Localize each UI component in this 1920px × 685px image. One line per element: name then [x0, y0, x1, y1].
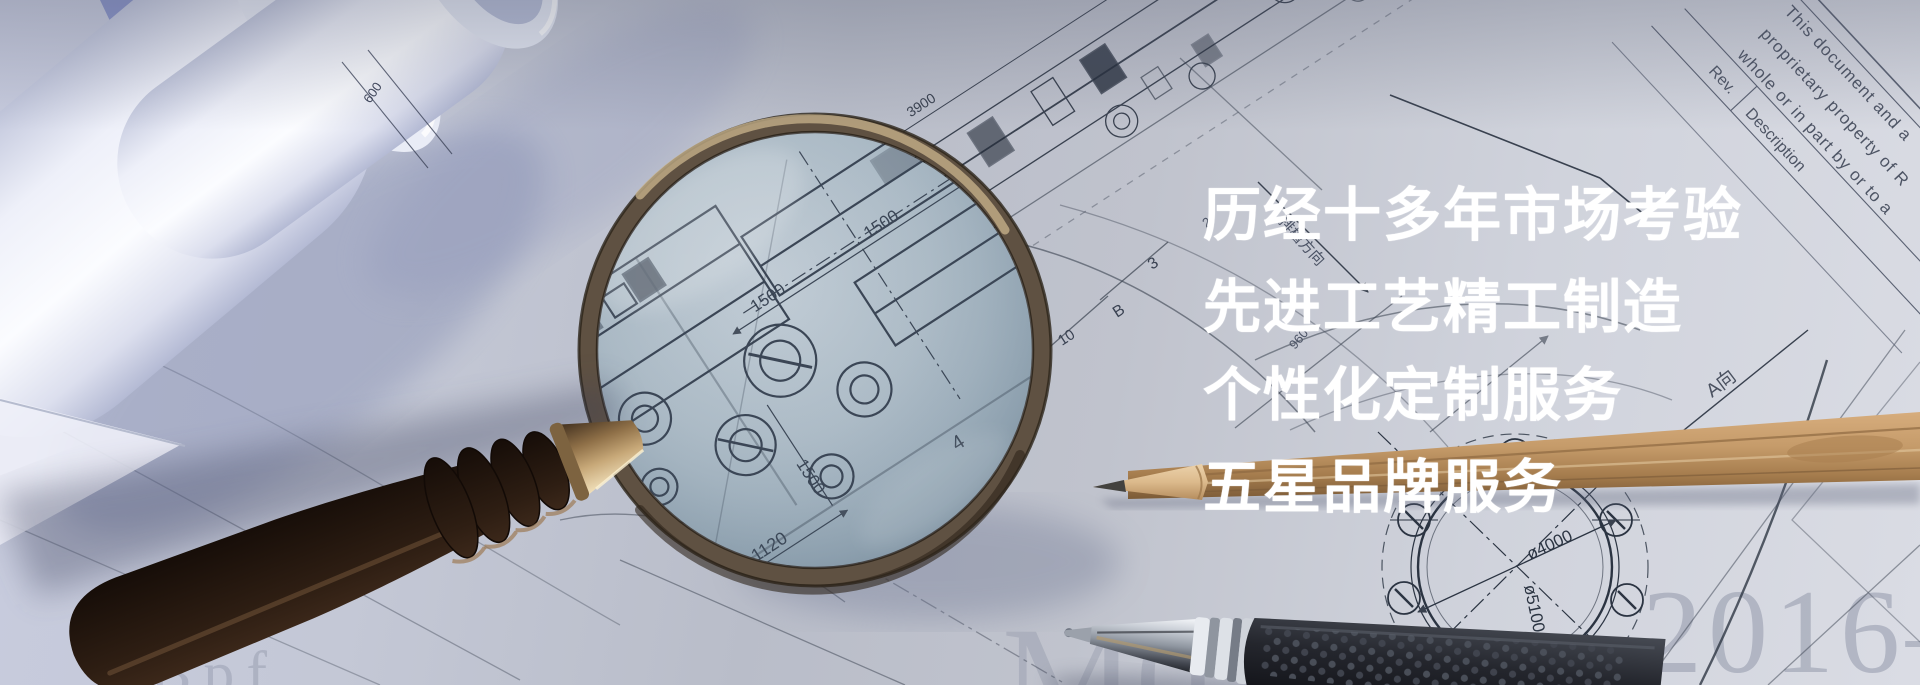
dim-label-3: 3 [1145, 254, 1162, 273]
dia-4000-label: ø4000 [1524, 526, 1576, 564]
top-vignette [0, 0, 1920, 130]
slogan-line-2: 先进工艺精工制造 [1203, 278, 1683, 338]
letter-b-drawing: B [1110, 301, 1128, 321]
slogan-line-1: 历经十多年市场考验 [1203, 186, 1743, 246]
slogan-line-4: 五星品牌服务 [1203, 458, 1563, 518]
pencil-graphite [1093, 480, 1126, 492]
dim-label-10: 10 [1055, 326, 1078, 349]
hero-banner: Bpf M0 2016— [0, 0, 1920, 685]
view-a-label: A向 [1702, 365, 1741, 402]
slogan-line-3: 个性化定制服务 [1203, 366, 1623, 426]
banner-photo: Bpf M0 2016— [0, 0, 1920, 685]
pen-chrome-rings [1189, 613, 1255, 685]
dia-5100-label: ø5100 [1520, 583, 1549, 634]
